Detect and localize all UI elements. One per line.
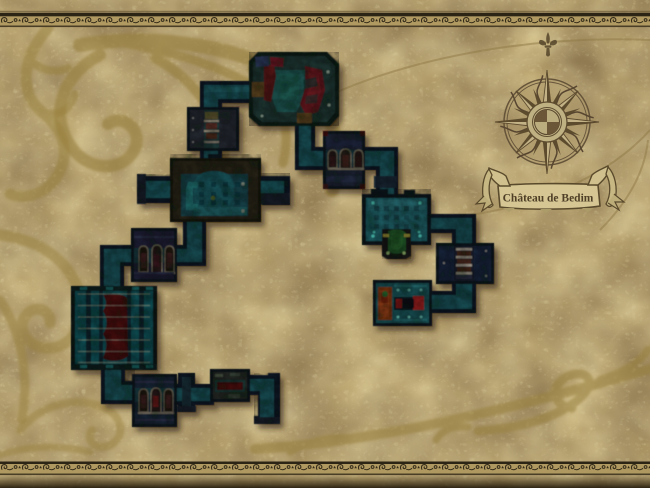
- svg-text:Château de Bedim: Château de Bedim: [503, 193, 594, 205]
